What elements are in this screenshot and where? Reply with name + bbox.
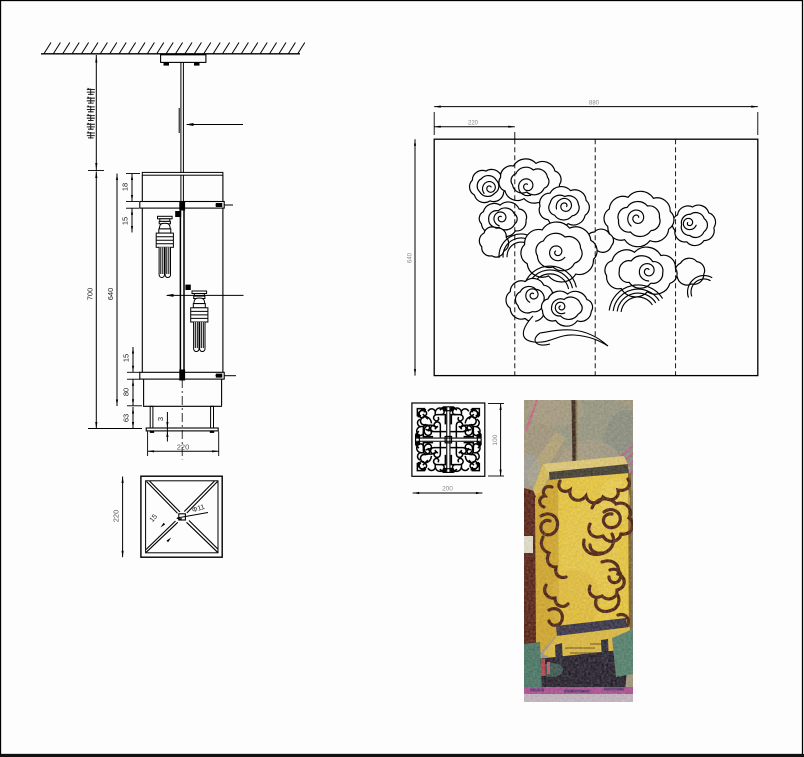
- svg-text:220: 220: [468, 121, 479, 127]
- svg-text:3: 3: [156, 417, 165, 421]
- svg-text:63: 63: [122, 414, 131, 422]
- svg-text:200: 200: [442, 486, 453, 493]
- svg-text:15: 15: [122, 354, 131, 362]
- svg-text:700: 700: [86, 288, 95, 301]
- svg-text:18: 18: [121, 183, 130, 191]
- svg-text:640: 640: [408, 252, 414, 263]
- svg-text:100: 100: [492, 434, 499, 445]
- svg-text:220: 220: [111, 510, 120, 523]
- svg-text:640: 640: [106, 288, 115, 301]
- svg-text:880: 880: [589, 100, 600, 106]
- svg-text:220: 220: [177, 443, 190, 452]
- svg-text:15: 15: [121, 217, 130, 225]
- svg-text:80: 80: [122, 388, 131, 396]
